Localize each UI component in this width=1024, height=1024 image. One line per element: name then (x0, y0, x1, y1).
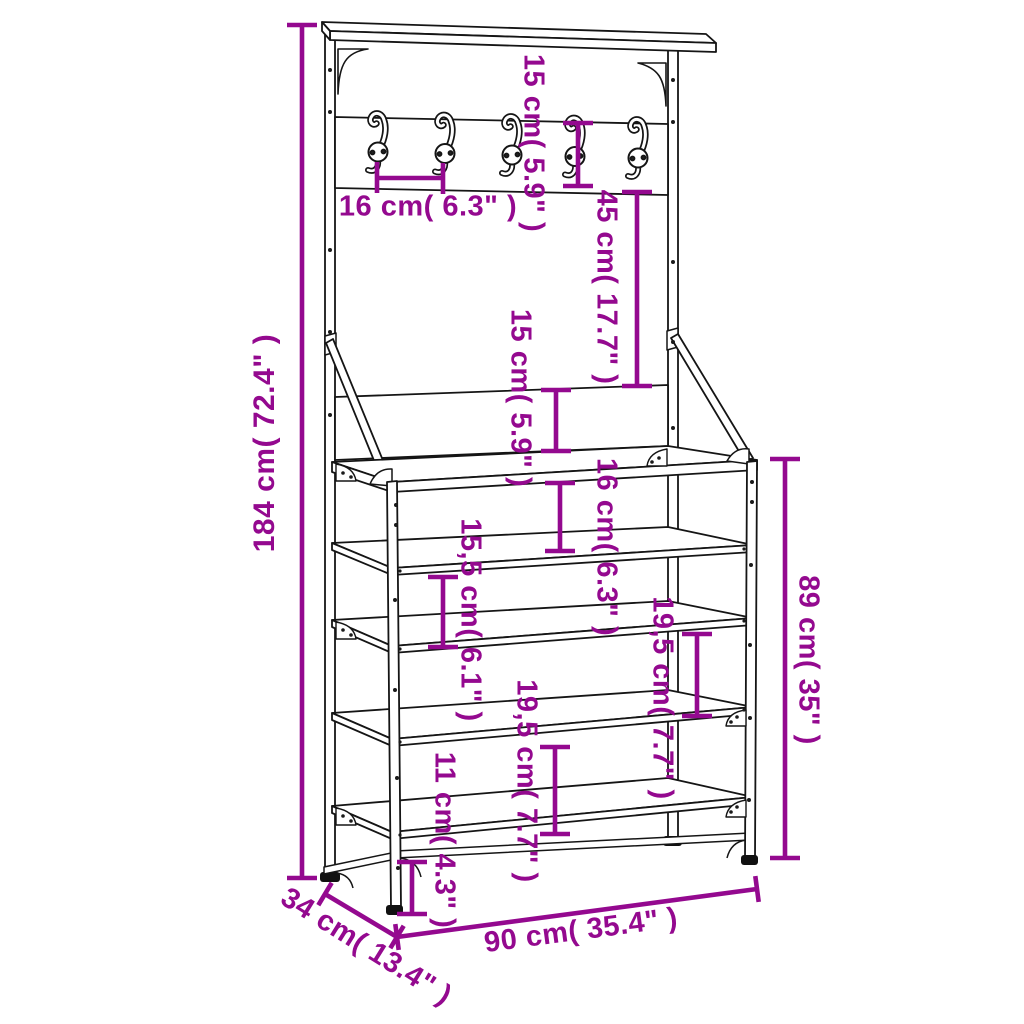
dim-label-floor-clearance: 11 cm( 4.3" ) (428, 752, 461, 929)
dim-label-right-shelf-gap: 19,5 cm( 7.7" ) (646, 596, 679, 799)
dim-label-lower-panel-height: 15 cm( 5.9" ) (504, 309, 537, 487)
dim-line-rail-to-panel-gap (622, 192, 652, 386)
dim-label-total-height: 184 cm( 72.4" ) (248, 334, 282, 553)
dim-label-rail-to-panel-gap: 45 cm( 17.7" ) (590, 190, 623, 385)
dim-label-bench-to-first-shelf: 16 cm( 6.3" ) (590, 458, 623, 636)
dim-label-hook-spacing: 16 cm( 6.3" ) (339, 191, 517, 224)
dim-label-hook-rail-height: 15 cm( 5.9" ) (517, 54, 550, 232)
dim-label-lower-shelf-gap: 19,5 cm( 7.7" ) (510, 679, 543, 882)
dim-line-total-height (287, 25, 317, 878)
dimension-diagram: 184 cm( 72.4" ) 15 cm( 5.9" ) 16 cm( 6.3… (0, 0, 1024, 1024)
diagonal-brace-right (667, 328, 753, 463)
dim-label-bench-height: 89 cm( 35" ) (792, 575, 825, 745)
dim-label-upper-shelf-gap: 15,5 cm( 6.1" ) (454, 518, 487, 721)
